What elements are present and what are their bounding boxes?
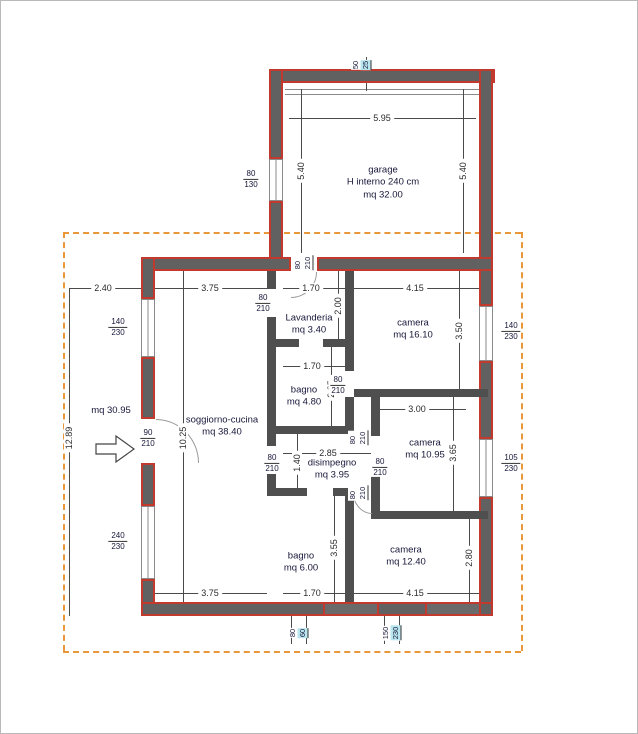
window-size-label: 140 230 — [108, 317, 127, 337]
dim-label: 5.40 — [296, 159, 306, 183]
window-height: 230 — [108, 542, 127, 552]
window-height: 60 — [298, 628, 309, 638]
window-size-label: 150 230 — [381, 626, 401, 641]
door-height: 210 — [253, 304, 272, 314]
wall-interior — [267, 271, 276, 289]
door-size-label: 80 210 — [348, 486, 368, 501]
door-width: 80 — [331, 375, 346, 386]
room-area: mq 12.40 — [386, 557, 426, 569]
room-name: bagno — [284, 551, 318, 563]
window — [269, 159, 283, 201]
room-area: mq 6.00 — [284, 563, 318, 575]
wall-top — [141, 257, 291, 271]
dim-label: 1.70 — [300, 588, 324, 598]
door-size-label: 80 210 — [253, 293, 272, 313]
dim-label: 4.15 — [403, 283, 427, 293]
wall-right — [479, 361, 493, 439]
wall-left — [141, 463, 155, 506]
door-size-label: 80 210 — [370, 457, 389, 477]
room-label-disimpegno: disimpegno mq 3.95 — [308, 458, 357, 483]
dim-label: 3.55 — [329, 536, 339, 560]
room-name: camera — [386, 545, 426, 557]
room-label-bagno1: bagno mq 4.80 — [287, 385, 321, 410]
wall-top — [317, 257, 493, 271]
dim-label: 2.40 — [91, 283, 115, 293]
room-name: camera — [393, 318, 433, 330]
window-size-label: 80 130 — [241, 169, 260, 189]
door-height: 210 — [370, 468, 389, 478]
dim-label: 2.85 — [316, 448, 340, 458]
door-width: 90 — [141, 428, 156, 439]
door-height: 210 — [328, 386, 347, 396]
wall-left — [141, 257, 155, 299]
lot-boundary-top — [63, 232, 521, 234]
window-size-label: 240 230 — [108, 531, 127, 551]
wall-interior — [323, 339, 354, 347]
dim-label: 2.80 — [464, 546, 474, 570]
room-label-bagno2: bagno mq 6.00 — [284, 551, 318, 576]
window-size-label: 105 230 — [501, 453, 520, 473]
window-height: 230 — [391, 626, 402, 641]
room-name: camera — [405, 438, 445, 450]
window-height: 230 — [501, 332, 520, 342]
dim-label: 1.70 — [299, 283, 323, 293]
window-width: 80 — [288, 628, 298, 638]
door-width: 80 — [348, 486, 358, 501]
door-width: 80 — [265, 453, 280, 464]
window-height: 230 — [108, 328, 127, 338]
door-height: 210 — [138, 439, 157, 449]
door-size-label: 80 210 — [262, 453, 281, 473]
door-width: 80 — [293, 256, 303, 271]
window — [479, 306, 493, 361]
door-size-label: 80 210 — [293, 256, 313, 271]
room-label-camera2: camera mq 10.95 — [405, 438, 445, 463]
door-height: 210 — [358, 431, 369, 446]
window-height: 130 — [241, 180, 260, 190]
window-width: 105 — [501, 453, 520, 464]
wall-interior — [345, 271, 354, 371]
door-width: 80 — [256, 293, 271, 304]
room-area: mq 30.95 — [91, 405, 131, 417]
room-name: disimpegno — [308, 458, 357, 470]
dim-label: 3.50 — [454, 319, 464, 343]
window-width: 140 — [501, 321, 520, 332]
window — [141, 299, 155, 357]
room-name: Lavanderia — [285, 313, 332, 325]
wall-interior — [267, 339, 299, 347]
dim-label: 3.65 — [448, 441, 458, 465]
wall-garage-left — [269, 69, 283, 159]
lot-boundary-right — [521, 232, 523, 651]
window — [425, 602, 481, 616]
dim-label: 3.75 — [198, 283, 222, 293]
dim-label: 1.40 — [292, 451, 302, 475]
room-area: mq 38.40 — [186, 427, 258, 439]
room-label-soggiorno: soggiorno-cucina mq 38.40 — [186, 415, 258, 440]
garage-door-line — [285, 94, 479, 95]
room-area: mq 4.80 — [287, 397, 321, 409]
wall-interior — [345, 496, 354, 602]
wall-garage-left — [269, 201, 283, 259]
room-detail: H interno 240 cm — [347, 177, 419, 189]
garage-door-line — [285, 89, 479, 90]
room-label-camera3: camera mq 12.40 — [386, 545, 426, 570]
window-height: 25 — [361, 60, 372, 70]
dim-label: 5.40 — [458, 159, 468, 183]
window-width: 50 — [351, 60, 361, 70]
wall-garage-top — [269, 69, 495, 83]
window-size-label: 80 60 — [288, 628, 308, 638]
dim-label: 3.00 — [405, 404, 429, 414]
window — [141, 506, 155, 579]
door-height: 210 — [358, 486, 369, 501]
window — [479, 439, 493, 497]
room-area: mq 16.10 — [393, 330, 433, 342]
room-area: mq 10.95 — [405, 450, 445, 462]
door-size-label: 90 210 — [138, 428, 157, 448]
floor-plan: 5.95 5.40 5.40 2.40 3.75 1.70 4.15 2.00 … — [0, 0, 638, 734]
window-size-label: 50 25 — [351, 60, 371, 70]
entrance-area-label: mq 30.95 — [91, 405, 131, 417]
window-width: 80 — [244, 169, 259, 180]
dim-label: 1.70 — [300, 361, 324, 371]
dim-label: 12.89 — [64, 424, 74, 453]
room-area: mq 32.00 — [347, 189, 419, 201]
dim-label: 4.15 — [403, 588, 427, 598]
door-height: 210 — [303, 256, 314, 271]
dim-label: 3.75 — [198, 588, 222, 598]
wall-interior — [380, 511, 488, 519]
wall-left — [141, 357, 155, 419]
room-name: soggiorno-cucina — [186, 415, 258, 427]
door-width: 80 — [373, 457, 388, 468]
window-size-label: 140 230 — [501, 321, 520, 341]
window-width: 150 — [381, 626, 391, 641]
door-size-label: 80 210 — [328, 375, 347, 395]
wall-interior — [371, 389, 380, 436]
lot-boundary-bottom — [63, 651, 521, 653]
entrance-arrow-icon — [94, 431, 136, 467]
window-width: 240 — [108, 531, 127, 542]
wall-interior — [267, 488, 307, 496]
room-area: mq 3.95 — [308, 470, 357, 482]
room-name: bagno — [287, 385, 321, 397]
window-width: 140 — [108, 317, 127, 328]
dim-label: 2.00 — [333, 294, 343, 318]
door-width: 80 — [348, 431, 358, 446]
room-name: garage — [347, 164, 419, 176]
window-height: 230 — [501, 464, 520, 474]
door-size-label: 80 210 — [348, 431, 368, 446]
dim-label: 5.95 — [370, 113, 394, 123]
door-height: 210 — [262, 464, 281, 474]
room-area: mq 3.40 — [285, 325, 332, 337]
wall-interior — [267, 426, 354, 434]
room-label-camera1: camera mq 16.10 — [393, 318, 433, 343]
room-label-lavanderia: Lavanderia mq 3.40 — [285, 313, 332, 338]
window — [323, 602, 379, 616]
room-label-garage: garage H interno 240 cm mq 32.00 — [347, 164, 419, 201]
